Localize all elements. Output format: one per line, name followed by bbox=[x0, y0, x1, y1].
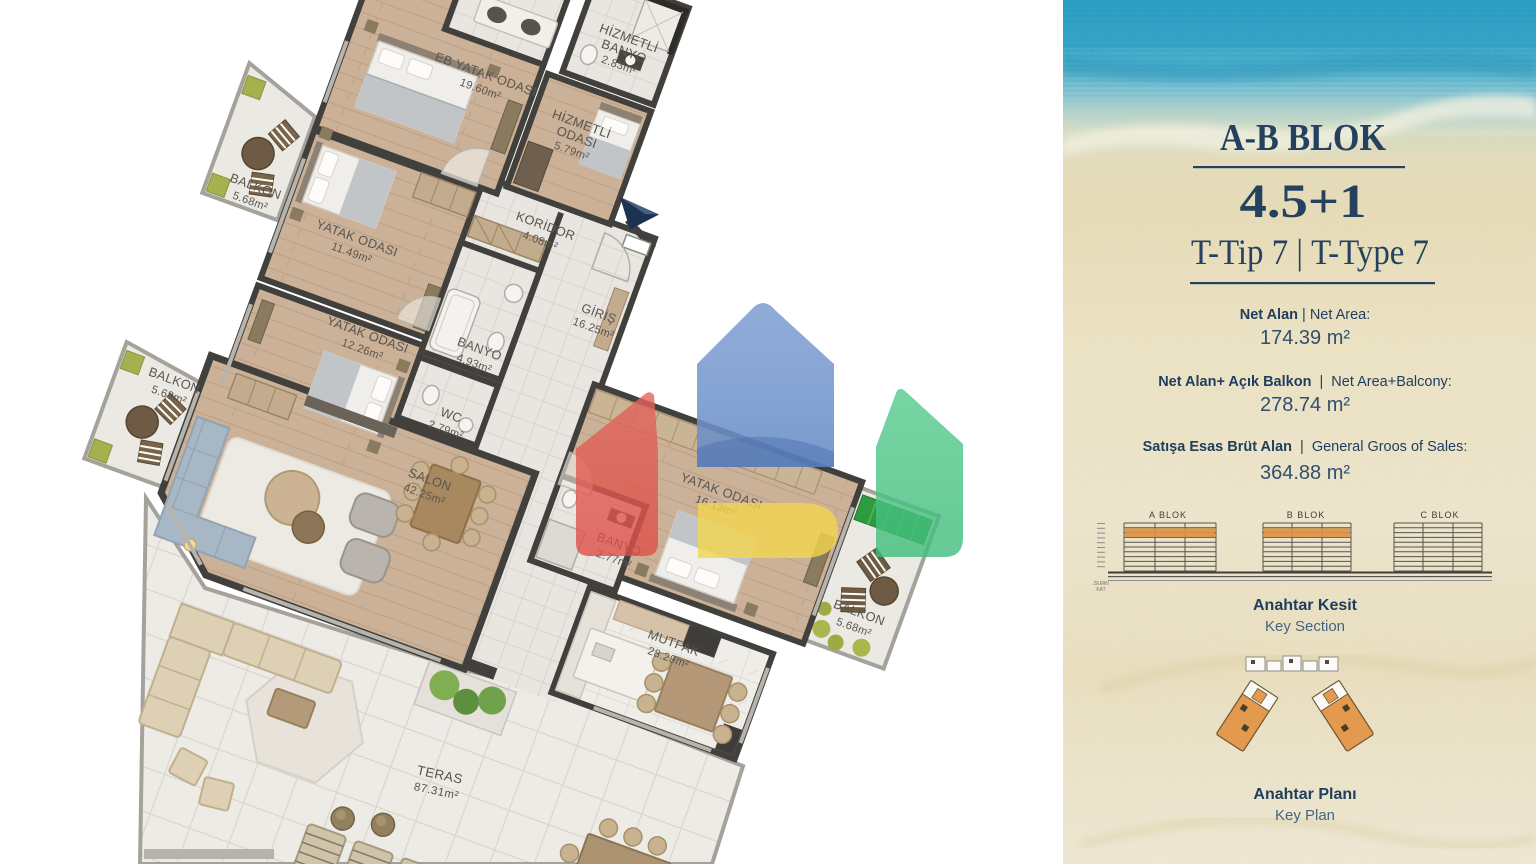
svg-text:KAT: KAT bbox=[1096, 587, 1105, 593]
svg-text:174.39 m²: 174.39 m² bbox=[1260, 327, 1350, 349]
svg-text:Anahtar Kesit: Anahtar Kesit bbox=[1253, 597, 1358, 614]
svg-text:T-Tip 7 | T-Type 7: T-Tip 7 | T-Type 7 bbox=[1191, 232, 1429, 272]
svg-text:278.74 m²: 278.74 m² bbox=[1260, 394, 1350, 416]
svg-text:C BLOK: C BLOK bbox=[1420, 510, 1459, 520]
svg-text:A BLOK: A BLOK bbox=[1149, 510, 1187, 520]
svg-text:Net Alan+ Açık Balkon | Net: Net Alan+ Açık Balkon | Net Area+Balcony… bbox=[1158, 374, 1452, 390]
svg-text:Anahtar Planı: Anahtar Planı bbox=[1253, 786, 1356, 803]
svg-text:364.88 m²: 364.88 m² bbox=[1260, 462, 1350, 484]
svg-text:4.5+1: 4.5+1 bbox=[1240, 175, 1367, 228]
svg-text:Net Alan | Net Area:: Net Alan | Net Area: bbox=[1240, 307, 1371, 323]
svg-text:Key Section: Key Section bbox=[1265, 618, 1345, 635]
svg-text:B BLOK: B BLOK bbox=[1287, 510, 1326, 520]
svg-text:A-B BLOK: A-B BLOK bbox=[1220, 117, 1386, 159]
svg-text:Satışa Esas Brüt Alan | Gene: Satışa Esas Brüt Alan | General Groos of… bbox=[1143, 439, 1468, 455]
svg-text:Key Plan: Key Plan bbox=[1275, 807, 1335, 824]
